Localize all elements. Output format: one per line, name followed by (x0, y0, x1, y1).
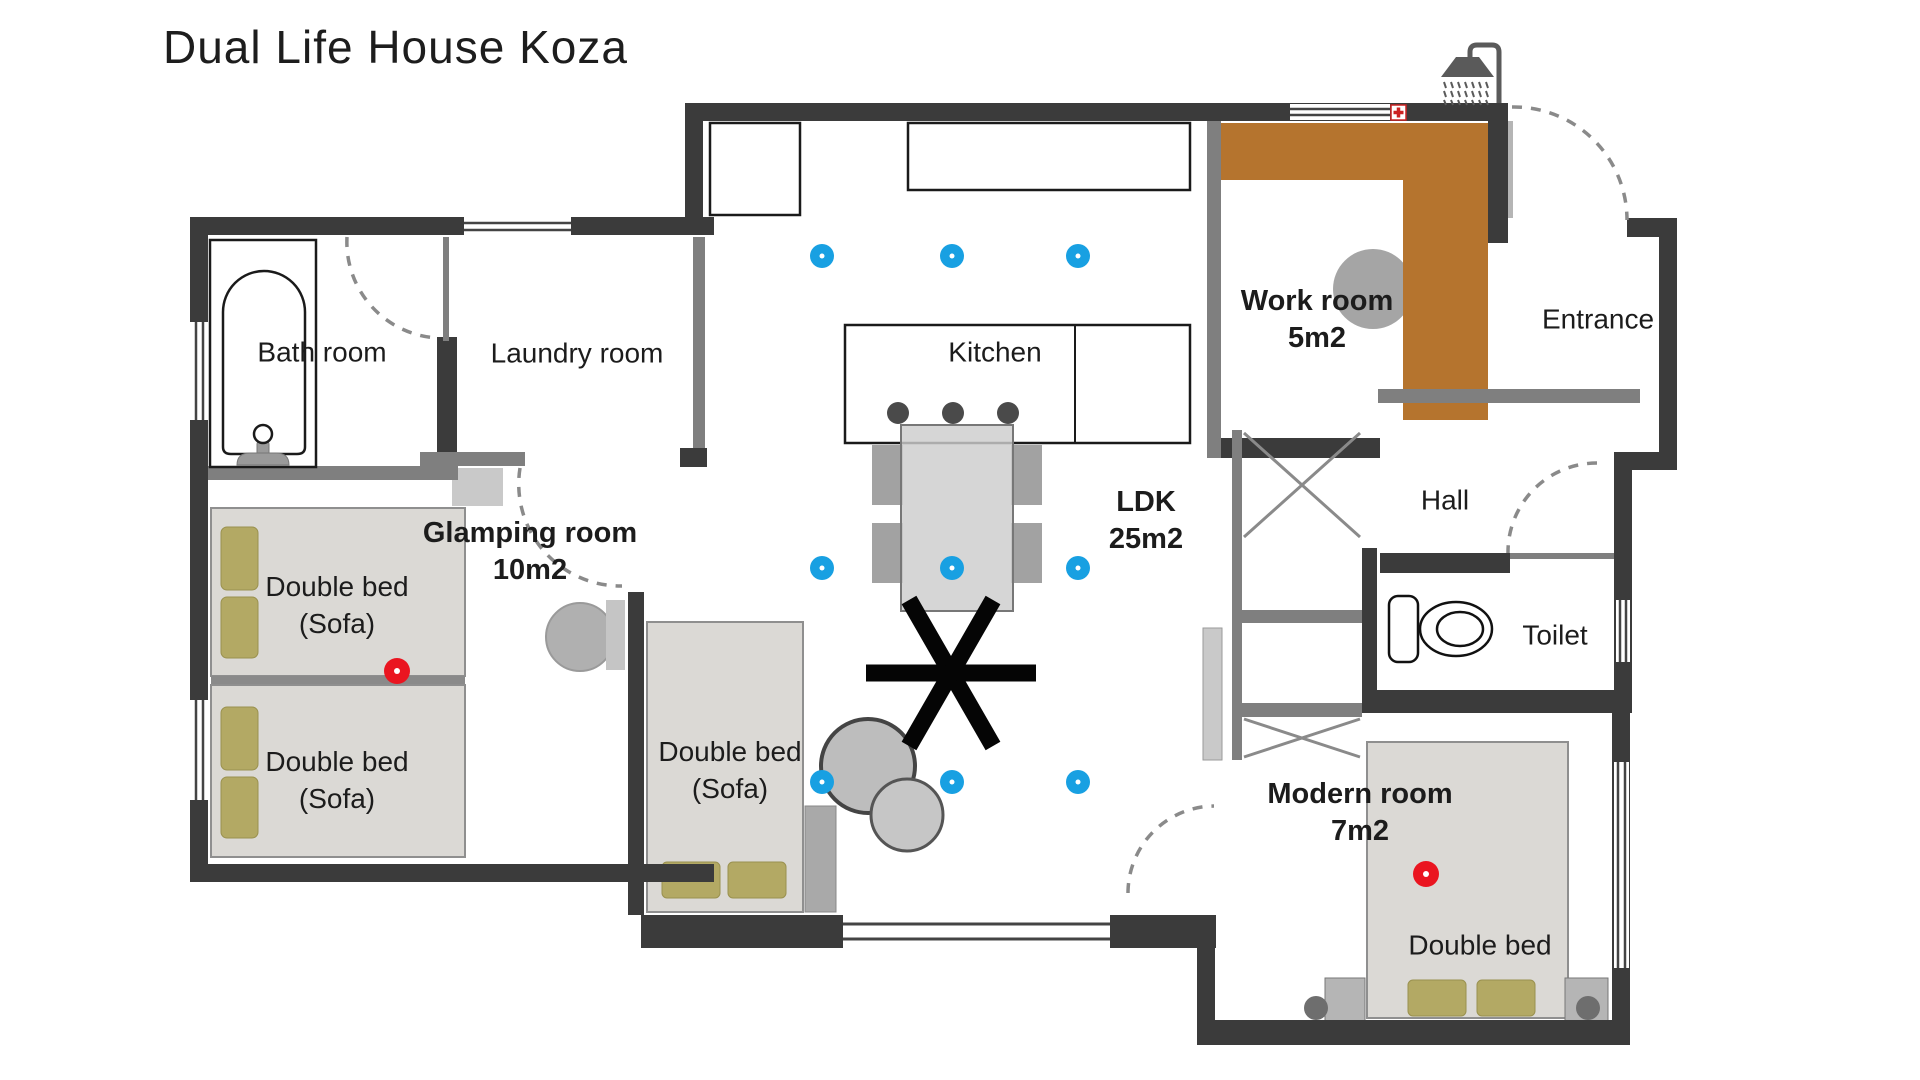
room-label-hall: Hall (1421, 482, 1469, 519)
window-left-upper (190, 322, 208, 420)
room-label-laundry: Laundry room (491, 335, 664, 372)
bed-label-glamping-2: Double bed (Sofa) (265, 743, 408, 817)
room-label-bath: Bath room (257, 334, 386, 371)
ldk-side-table (805, 806, 836, 912)
room-label-kitchen: Kitchen (948, 334, 1041, 371)
window-ldk-south (843, 915, 1110, 948)
floor-plan-drawing (0, 0, 1920, 1080)
room-label-entrance: Entrance (1542, 301, 1654, 338)
toilet-door-arc (1508, 463, 1597, 553)
glamping-bed-divider (211, 676, 465, 685)
washing-machine (452, 468, 503, 506)
window-work-room (1290, 104, 1390, 120)
hall-shelf (1203, 628, 1222, 760)
round-chair (546, 603, 614, 671)
nightstand-left (1304, 978, 1365, 1022)
corridor-shelf (606, 600, 625, 670)
room-label-glamping: Glamping room 10m2 (423, 515, 637, 589)
modern-door-arc (1128, 806, 1214, 893)
kitchen-counter-top (908, 123, 1190, 190)
window-laundry-top (464, 217, 571, 235)
pouf-small (871, 779, 943, 851)
bed-label-glamping-1: Double bed (Sofa) (265, 568, 408, 642)
page-title: Dual Life House Koza (163, 20, 628, 74)
window-modern (1614, 762, 1629, 968)
bath-door-arc (347, 237, 438, 338)
window-left-lower (190, 700, 208, 800)
room-label-modern: Modern room 7m2 (1267, 776, 1452, 850)
bed-label-modern: Double bed (1408, 927, 1551, 964)
nightstand-right (1565, 978, 1608, 1022)
room-label-toilet: Toilet (1522, 617, 1587, 654)
entrance-door-arc (1512, 107, 1627, 220)
first-aid-cross-icon (1391, 105, 1406, 120)
dining-table (901, 425, 1013, 611)
floor-plan: Dual Life House Koza Bath room Laundry r… (0, 0, 1920, 1080)
kitchen-counter-left (710, 123, 800, 215)
bed-label-ldk: Double bed (Sofa) (658, 733, 801, 807)
shower-icon (1441, 45, 1499, 105)
toilet-icon (1389, 596, 1492, 662)
room-label-ldk: LDK 25m2 (1109, 484, 1183, 558)
room-label-work: Work room 5m2 (1241, 283, 1394, 357)
window-toilet (1616, 600, 1630, 662)
